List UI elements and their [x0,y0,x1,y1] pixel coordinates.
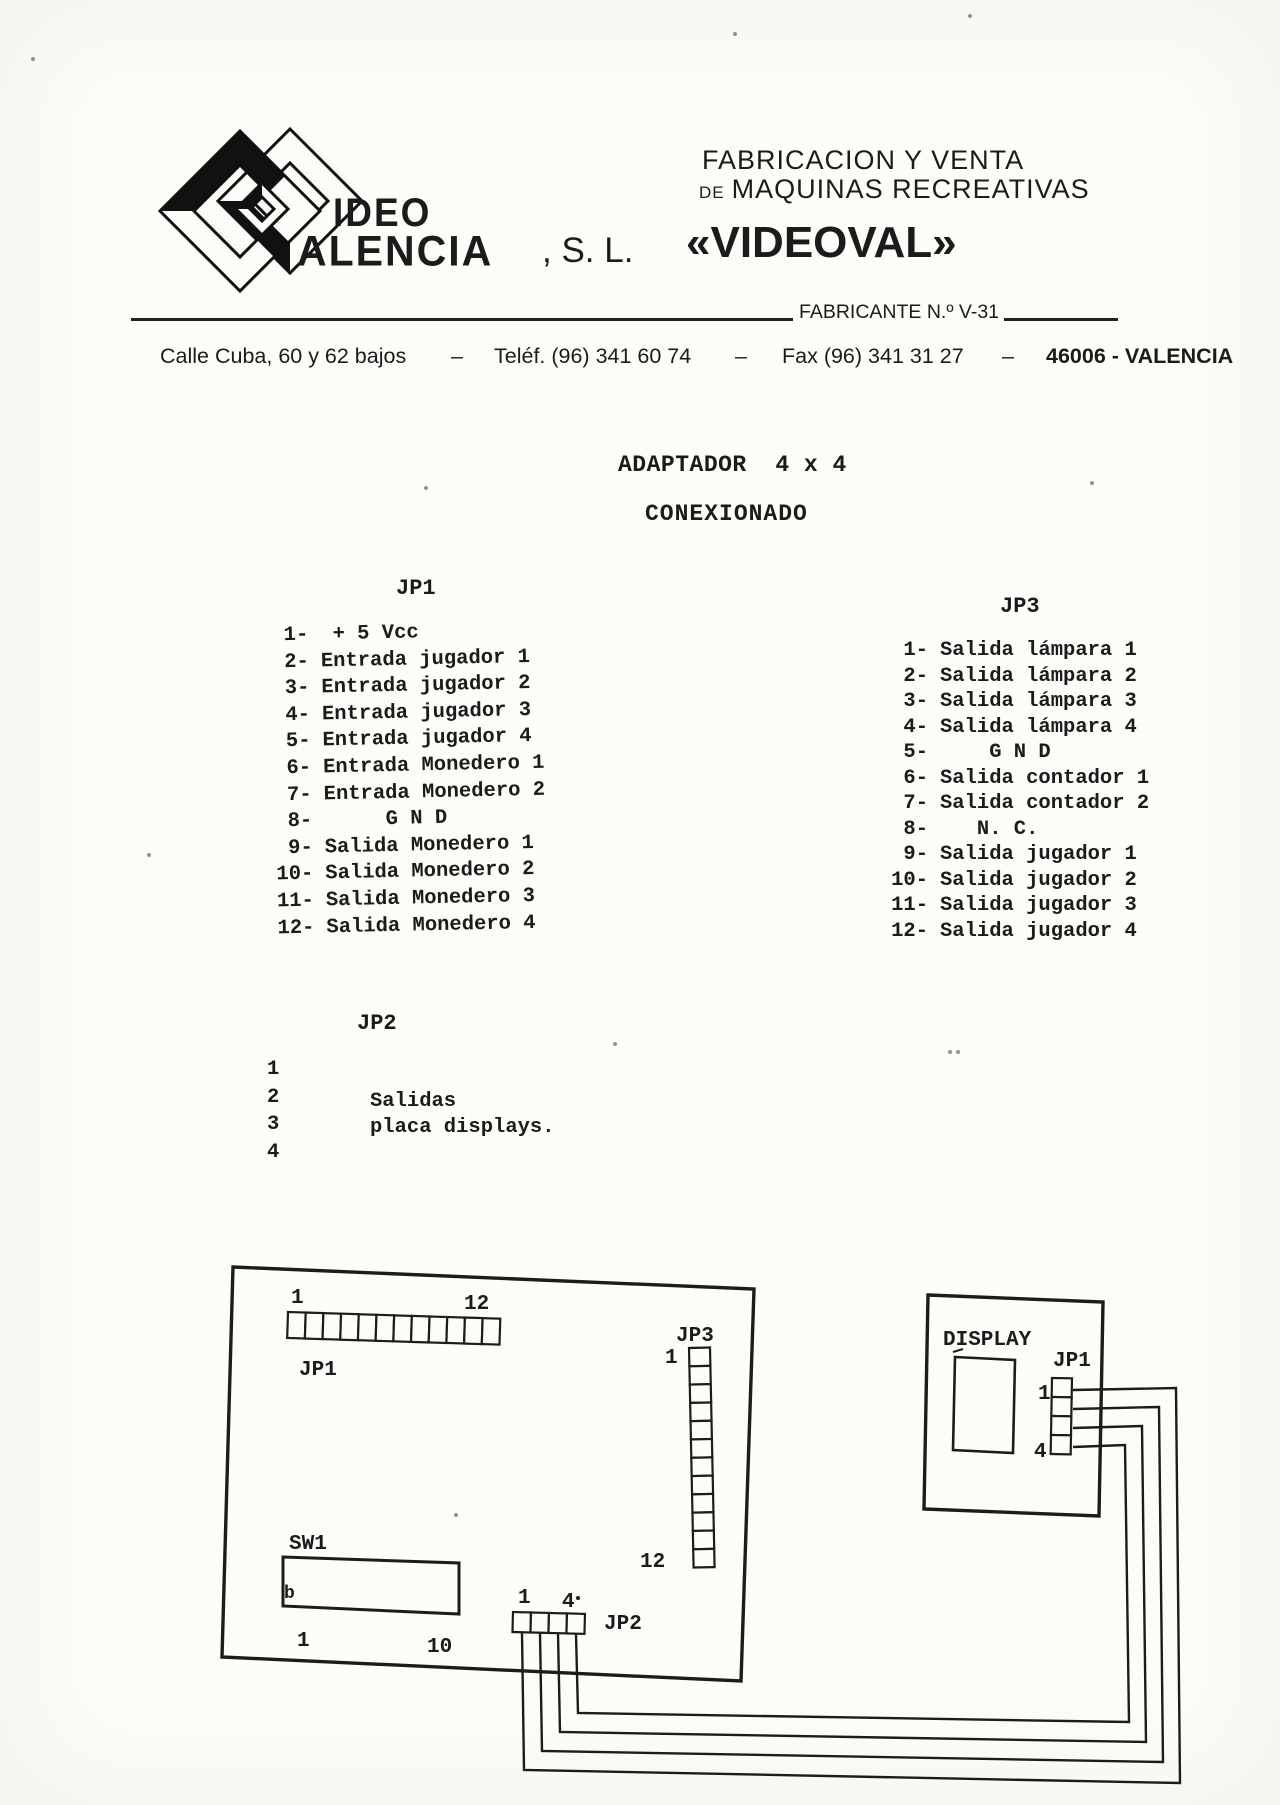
jp2-connector-label: JP2 [604,1613,642,1636]
wires [522,1388,1180,1783]
jp2-pin4-label: 4 [562,1591,575,1614]
main-board: 1 12 JP1 JP3 1 12 SW1 b 1 10 1 [222,1267,754,1681]
jp1-pin12-label: 12 [464,1293,489,1316]
display-jp1-pin1-label: 1 [1038,1383,1051,1406]
scanned-document-page: IDEO ALENCIA , S. L. «VIDEOVAL» FABRICAC… [0,0,1280,1805]
jp1-connector-label: JP1 [299,1359,337,1382]
jp3-pin1-label: 1 [665,1347,678,1370]
jp3-pin12-label: 12 [640,1551,665,1574]
scan-dot [576,1596,580,1600]
sw1-mark: b [284,1584,295,1604]
jp3-connector-label: JP3 [676,1325,714,1348]
sw1-outline [283,1557,459,1614]
display-jp1-label: JP1 [1053,1350,1091,1373]
sw1-pin1-label: 1 [297,1630,310,1653]
jp1-pin1-label: 1 [291,1287,304,1310]
jp1-connector [287,1312,500,1345]
sw1-label: SW1 [289,1533,327,1556]
jp2-pin1-label: 1 [518,1587,531,1610]
wire-jp2pin2-displaypin2 [540,1407,1163,1762]
sw1-pin10-label: 10 [427,1636,452,1659]
display-jp1-pin4-label: 4 [1034,1441,1047,1464]
jp2-connector [512,1612,584,1634]
display-label: DISPLAY [943,1329,1032,1352]
wire-jp2pin4-displaypin4 [576,1445,1129,1722]
display-window [953,1357,1015,1453]
display-jp1-connector [1051,1378,1072,1454]
wiring-diagram: 1 12 JP1 JP3 1 12 SW1 b 1 10 1 [0,0,1280,1805]
jp3-connector [689,1348,715,1568]
wire-jp2pin3-displaypin3 [558,1426,1146,1742]
display-board: DISPLAY JP1 1 4 [924,1295,1103,1516]
